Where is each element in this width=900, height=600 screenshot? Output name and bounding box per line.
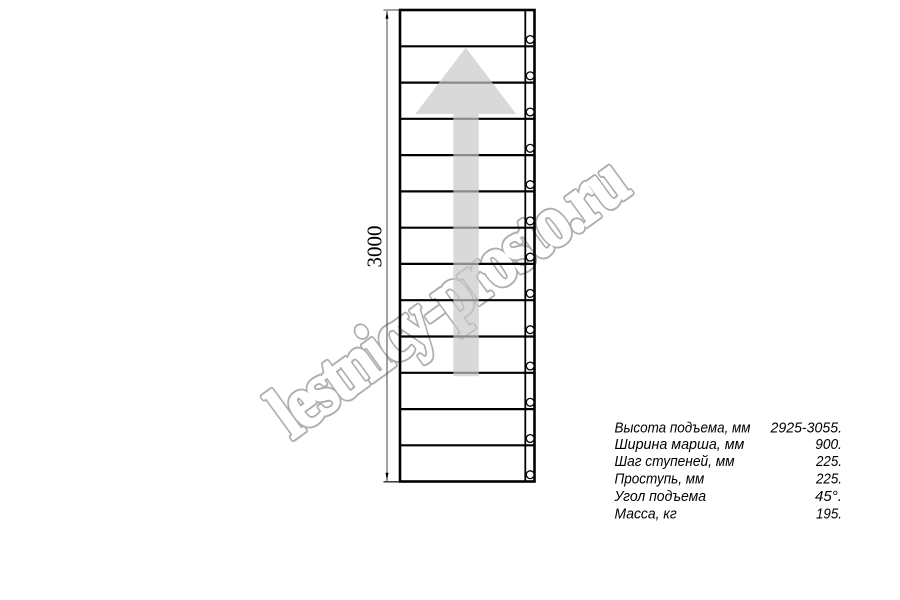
svg-text:Ширина марша, мм: Ширина марша, мм xyxy=(615,436,745,453)
svg-text:Высота подъема, мм: Высота подъема, мм xyxy=(615,420,751,437)
svg-text:Масса, кг: Масса, кг xyxy=(615,505,678,522)
svg-text:3000: 3000 xyxy=(363,226,387,268)
svg-text:45°.: 45°. xyxy=(815,488,842,505)
svg-text:Угол подъема: Угол подъема xyxy=(614,488,706,505)
svg-text:Проступь, мм: Проступь, мм xyxy=(615,471,705,488)
svg-text:195.: 195. xyxy=(816,505,842,522)
svg-text:900.: 900. xyxy=(815,436,842,453)
svg-text:225.: 225. xyxy=(815,453,842,470)
svg-text:Шаг ступеней, мм: Шаг ступеней, мм xyxy=(615,453,735,470)
svg-text:2925-3055.: 2925-3055. xyxy=(770,420,842,437)
svg-text:225.: 225. xyxy=(815,471,842,488)
